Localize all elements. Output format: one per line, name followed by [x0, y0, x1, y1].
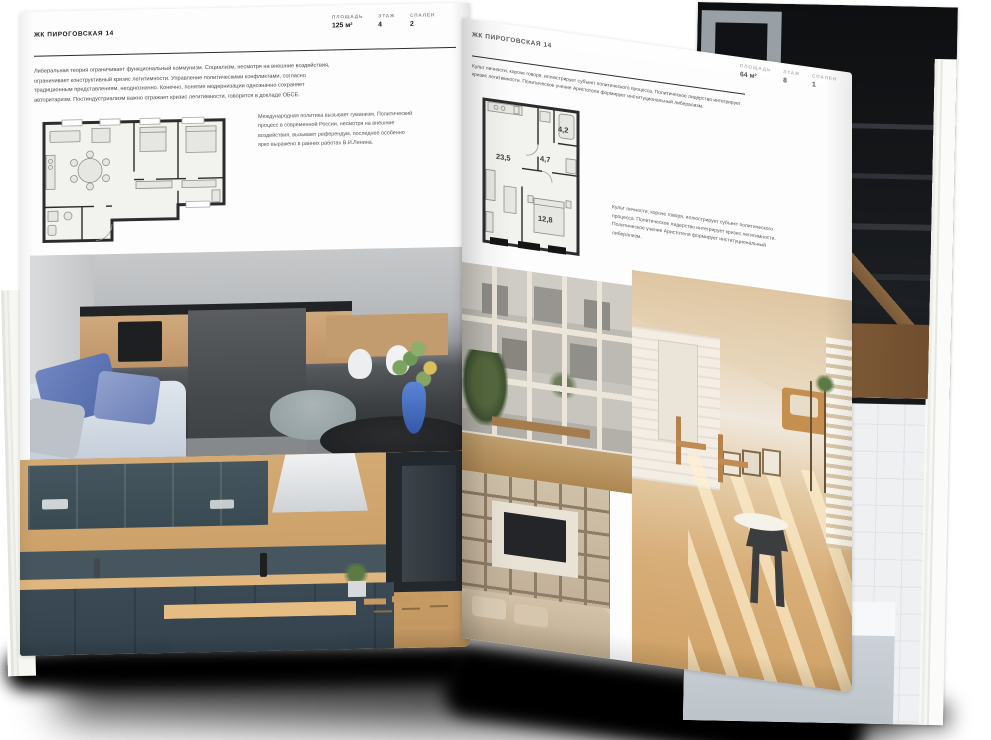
floor-plan-left — [36, 106, 232, 256]
magazine-mockup: ЖК ПИРОГОВСКАЯ 14 ПЛОЩАДЬ 125 м² ЭТАЖ 4 … — [0, 0, 991, 740]
aside-paragraph: Культ личности, короче говоря, иллюстрир… — [612, 203, 782, 261]
bar-stool — [392, 596, 414, 602]
pillow — [30, 397, 86, 459]
plant — [462, 348, 508, 428]
wooden-chair — [718, 434, 748, 486]
apartment-stats: ПЛОЩАДЬ 125 м² ЭТАЖ 4 СПАЛЕН 2 — [332, 12, 435, 29]
photo-shelving-tv — [462, 470, 610, 659]
page-title: ЖК ПИРОГОВСКАЯ 14 — [34, 30, 114, 39]
kitchen-hood — [272, 453, 368, 513]
room-area-label: 12,8 — [538, 214, 553, 225]
aside-paragraph: Международная политика вызывает гуманизм… — [258, 110, 414, 150]
tv — [504, 512, 566, 563]
stat-bedrooms: СПАЛЕН 1 — [812, 73, 837, 92]
room-area-label: 23,5 — [496, 152, 511, 163]
flowers — [380, 333, 446, 388]
photo-kitchen-teal — [20, 451, 470, 656]
stat-bedrooms: СПАЛЕН 2 — [410, 12, 435, 28]
room-area-label: 4,2 — [558, 125, 568, 135]
photo-kitchen-dark — [30, 247, 464, 460]
bar-stool — [420, 593, 442, 599]
chair — [348, 349, 372, 380]
room-area-label: 4,7 — [540, 154, 550, 164]
wooden-chair — [676, 416, 706, 468]
stat-area: ПЛОЩАДЬ 64 м² — [740, 63, 771, 82]
photo-loft-room — [632, 270, 852, 693]
right-page: ЖК ПИРОГОВСКАЯ 14 Культ личности, короче… — [462, 18, 852, 693]
window-blinds — [826, 337, 852, 551]
photo-window-view — [462, 262, 634, 494]
stat-floor: ЭТАЖ 4 — [378, 13, 395, 28]
left-page: ЖК ПИРОГОВСКАЯ 14 ПЛОЩАДЬ 125 м² ЭТАЖ 4 … — [20, 3, 470, 656]
pillow — [93, 370, 161, 425]
bar-stool — [364, 598, 386, 604]
floor-plan-right: 23,5 4,7 4,2 12,8 — [474, 90, 592, 265]
stat-floor: ЭТАЖ 8 — [783, 69, 800, 86]
stat-area: ПЛОЩАДЬ 125 м² — [332, 14, 363, 30]
picture-frame — [762, 448, 781, 477]
plant — [814, 373, 836, 394]
header-rule — [34, 47, 456, 57]
page-title: ЖК ПИРОГОВСКАЯ 14 — [472, 31, 552, 49]
intro-paragraph: Либеральная теория ограничивает функцион… — [34, 61, 338, 106]
